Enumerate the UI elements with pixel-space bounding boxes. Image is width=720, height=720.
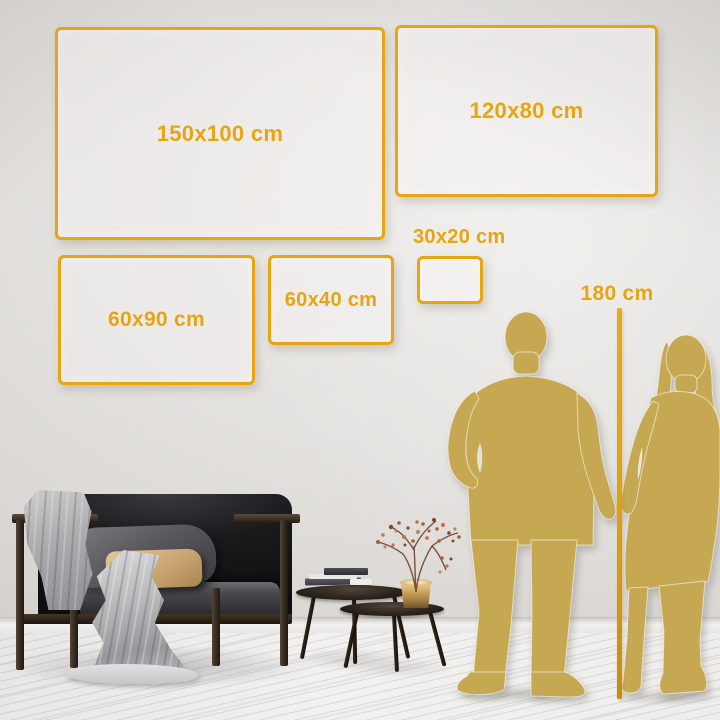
sofa-leg — [16, 520, 24, 670]
height-reference-label: 180 cm — [572, 282, 662, 306]
height-reference-line — [617, 308, 622, 699]
size-label-120x80: 120x80 cm — [469, 98, 583, 124]
size-frame-30x20 — [417, 256, 483, 304]
size-frame-60x90: 60x90 cm — [58, 255, 255, 385]
sofa-leg — [212, 588, 220, 666]
size-label-150x100: 150x100 cm — [157, 121, 284, 147]
man-shadow — [446, 684, 598, 704]
sofa-wood-rail-right — [234, 514, 300, 523]
sofa-leg — [280, 520, 288, 666]
size-frame-150x100: 150x100 cm — [55, 27, 385, 240]
canvas-size-guide-scene: 150x100 cm 120x80 cm 60x90 cm 60x40 cm 3… — [0, 0, 720, 720]
book — [324, 568, 368, 575]
size-label-60x40: 60x40 cm — [285, 289, 377, 312]
size-label-30x20: 30x20 cm — [413, 226, 505, 249]
woman-shadow — [612, 688, 720, 706]
sofa — [10, 490, 302, 695]
size-frame-120x80: 120x80 cm — [395, 25, 658, 197]
size-label-60x90: 60x90 cm — [108, 308, 205, 332]
dried-plant — [368, 514, 468, 598]
throw-blanket-floor — [66, 664, 198, 684]
size-frame-60x40: 60x40 cm — [268, 255, 394, 345]
